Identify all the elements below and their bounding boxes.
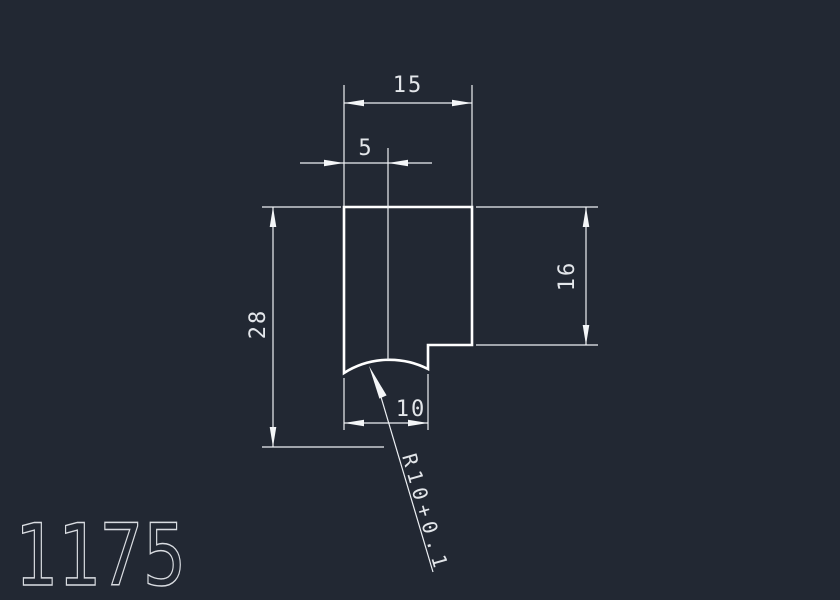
radius-callout-label: R10+0.1 [397, 451, 454, 576]
dimension-center-offset: 5 [300, 136, 432, 360]
arrowhead [583, 207, 590, 227]
arrowhead [324, 160, 344, 167]
dim-center-offset-label: 5 [358, 136, 373, 161]
arrowhead [344, 100, 364, 107]
arrowhead [388, 160, 408, 167]
dim-right-height-label: 16 [555, 261, 580, 292]
cad-drawing: 15 5 28 16 [0, 0, 840, 600]
dimension-bottom-width: 10 [344, 374, 428, 430]
dim-bottom-width-label: 10 [396, 397, 427, 422]
part-profile-outline [344, 207, 472, 373]
arrowhead [344, 420, 364, 427]
cad-drawing-canvas: 15 5 28 16 [0, 0, 840, 600]
dim-top-width-label: 15 [393, 73, 424, 98]
part-number: 1175 [14, 506, 186, 600]
dimension-right-height: 16 [476, 207, 598, 345]
dimension-overall-height: 28 [246, 207, 384, 447]
profile-path [344, 207, 472, 373]
leader-arrowhead [369, 366, 387, 399]
arrowhead [270, 207, 277, 227]
dim-overall-height-label: 28 [246, 309, 271, 340]
arrowhead [270, 427, 277, 447]
arrowhead [583, 325, 590, 345]
arrowhead [452, 100, 472, 107]
